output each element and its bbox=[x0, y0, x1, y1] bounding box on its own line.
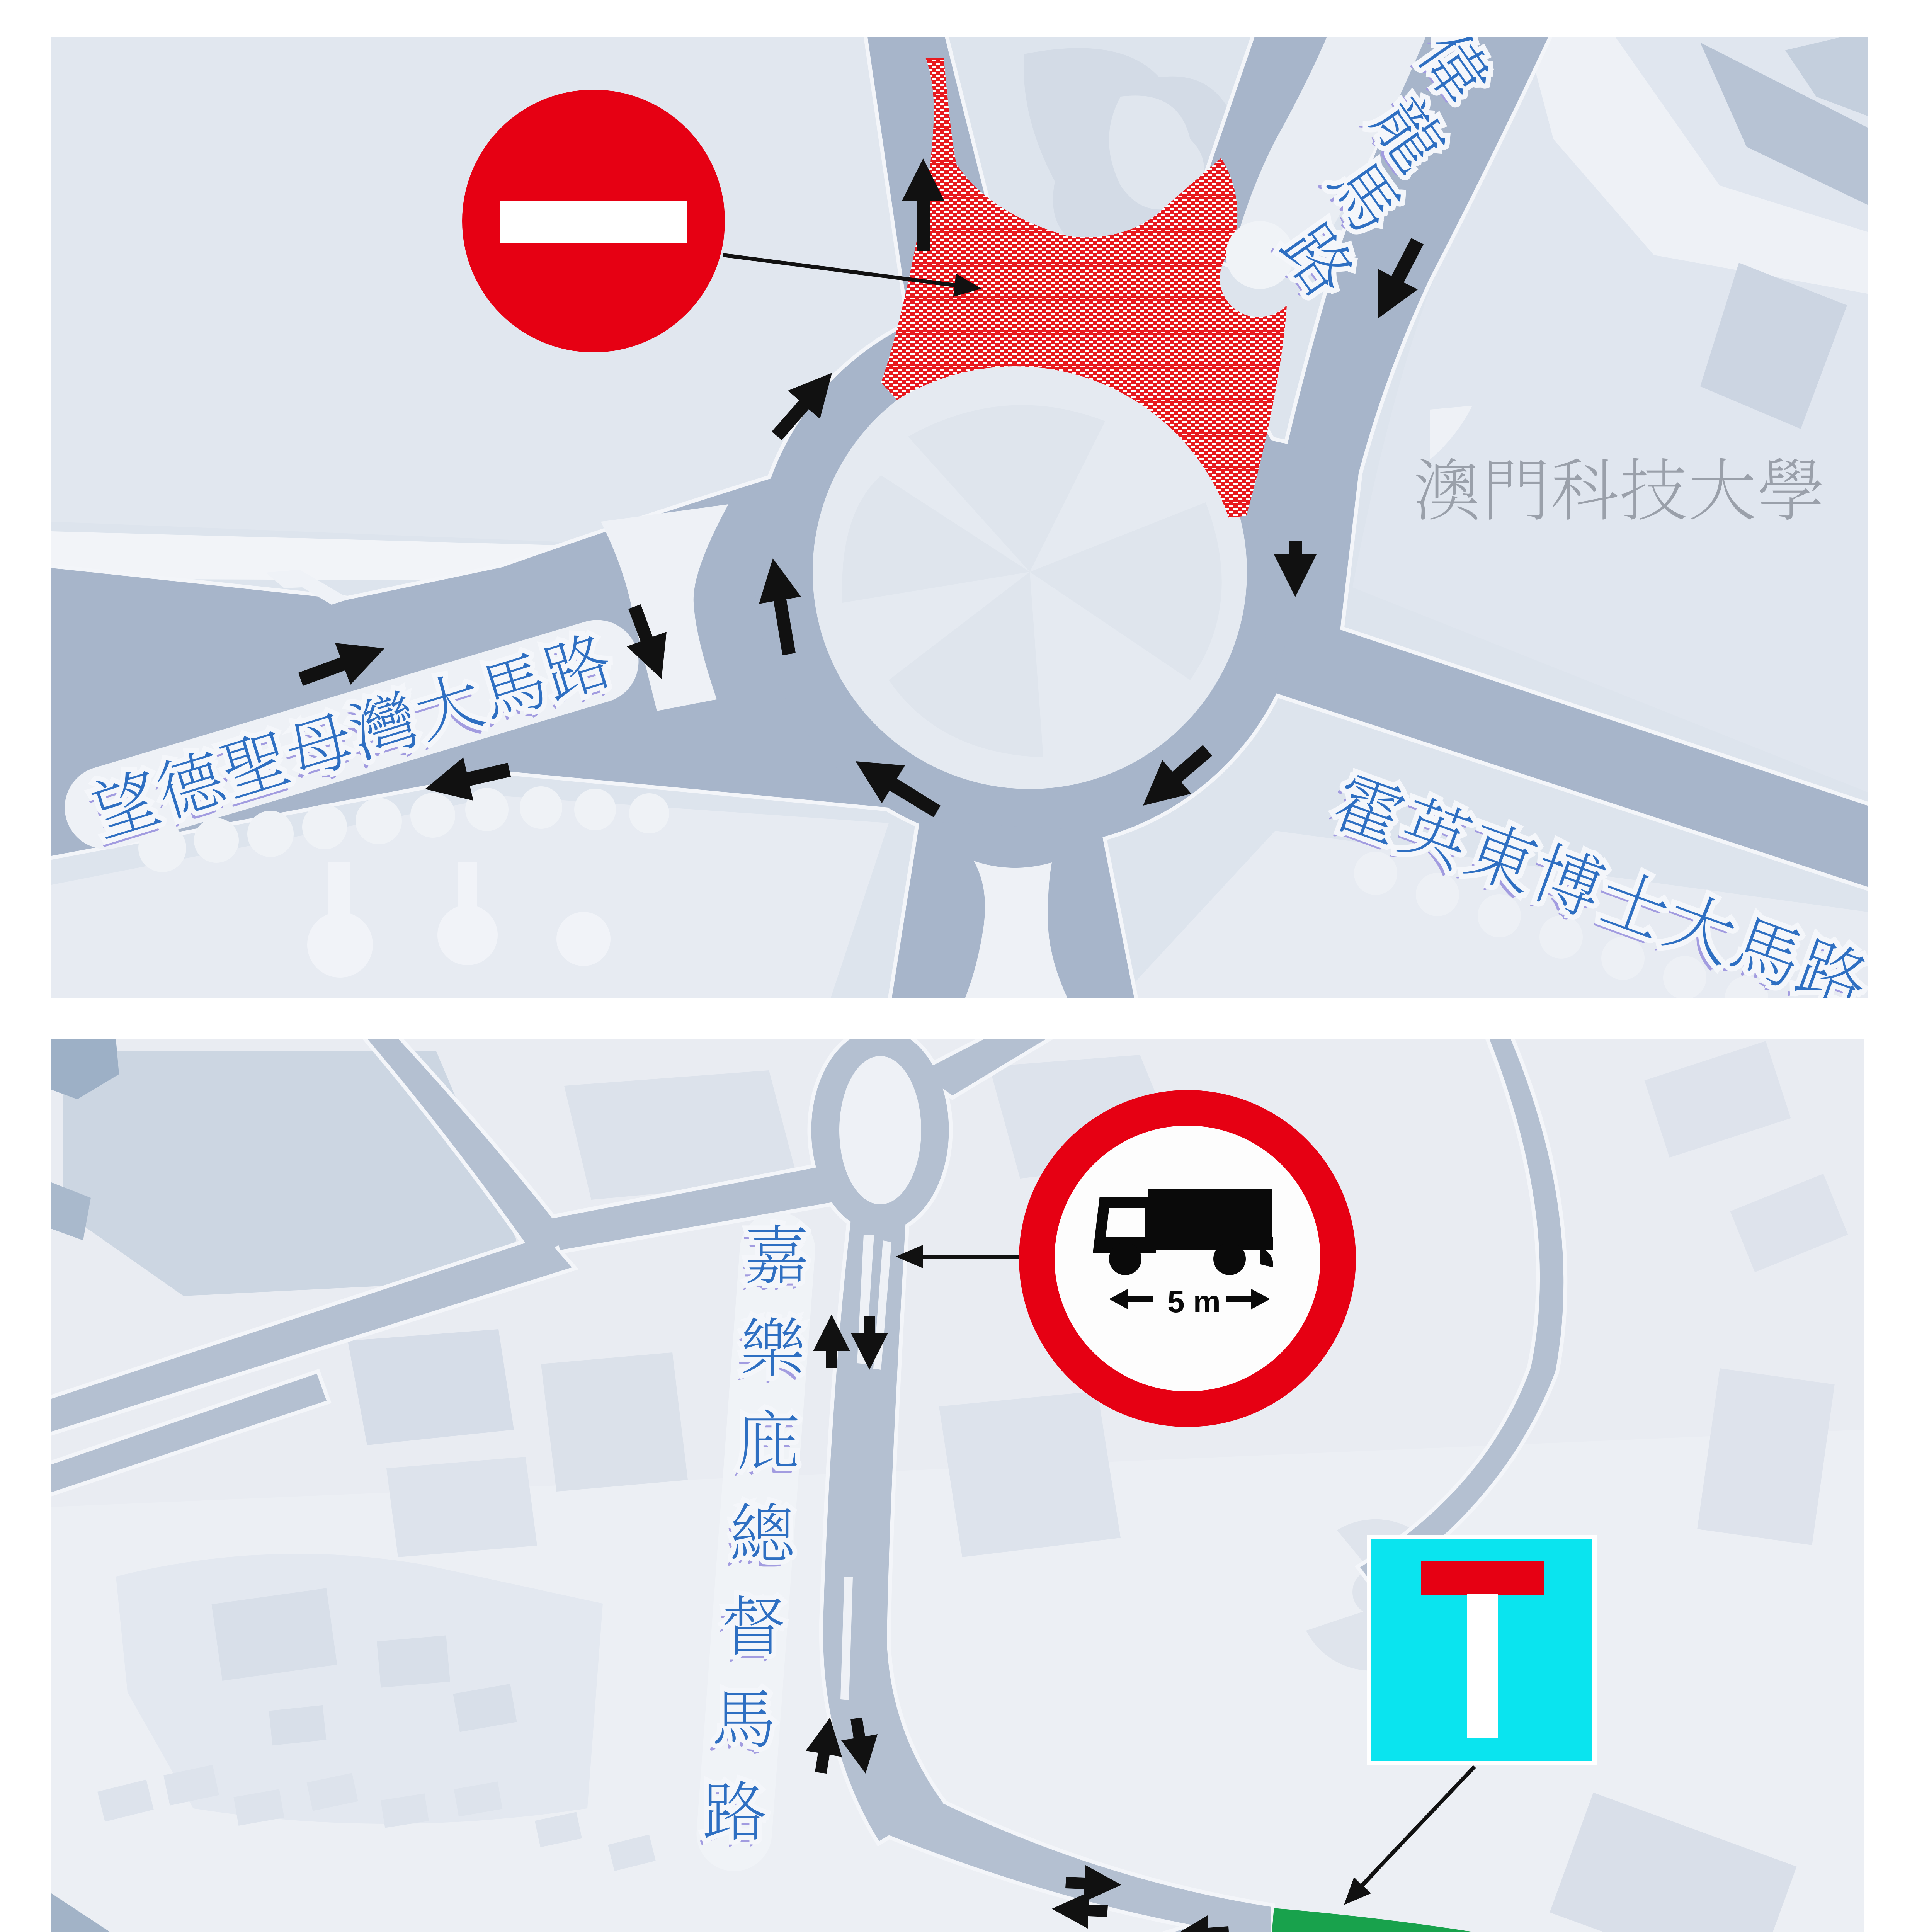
svg-text:5 m: 5 m bbox=[1167, 1284, 1221, 1319]
